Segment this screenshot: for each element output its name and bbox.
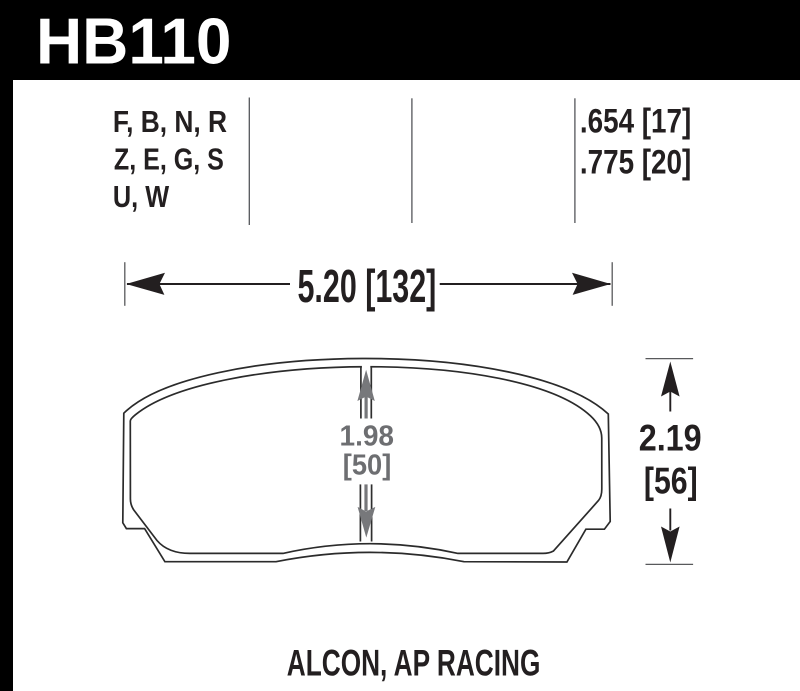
svg-text:.775 [20]: .775 [20]: [580, 143, 691, 181]
svg-text:[50]: [50]: [343, 450, 392, 482]
svg-text:U, W: U, W: [113, 179, 170, 214]
svg-text:5.20 [132]: 5.20 [132]: [298, 260, 437, 312]
svg-text:F, B, N, R: F, B, N, R: [113, 104, 227, 139]
svg-text:ALCON, AP RACING: ALCON, AP RACING: [287, 642, 541, 683]
svg-text:[56]: [56]: [644, 461, 698, 502]
svg-text:2.19: 2.19: [639, 417, 702, 458]
svg-text:.654 [17]: .654 [17]: [580, 102, 691, 140]
svg-text:Z, E, G, S: Z, E, G, S: [114, 141, 224, 176]
svg-text:HB110: HB110: [36, 4, 232, 77]
svg-text:1.98: 1.98: [340, 420, 395, 452]
